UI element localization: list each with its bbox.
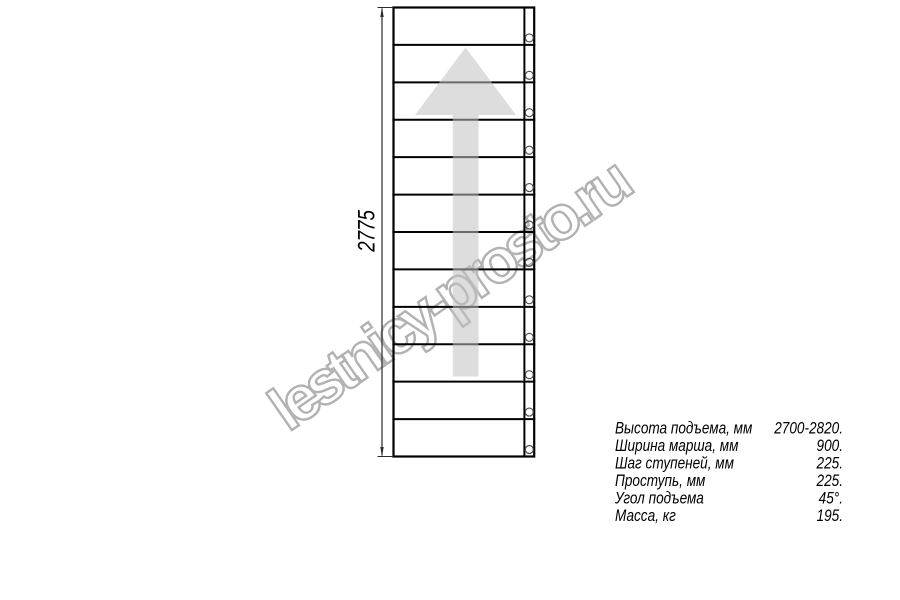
svg-text:45°.: 45°.: [819, 489, 843, 508]
svg-text:Шаг ступеней, мм: Шаг ступеней, мм: [615, 454, 734, 473]
svg-text:Ширина марша, мм: Ширина марша, мм: [615, 437, 739, 456]
svg-text:2700-2820.: 2700-2820.: [773, 419, 843, 438]
svg-text:Высота подъема, мм: Высота подъема, мм: [615, 419, 753, 438]
svg-text:2775: 2775: [353, 209, 380, 252]
svg-text:Угол подъема: Угол подъема: [614, 489, 704, 508]
svg-text:900.: 900.: [817, 437, 843, 456]
svg-text:225.: 225.: [816, 472, 843, 491]
svg-text:225.: 225.: [816, 454, 843, 473]
svg-text:195.: 195.: [817, 507, 843, 526]
svg-text:Масса, кг: Масса, кг: [615, 507, 676, 526]
svg-text:Проступь, мм: Проступь, мм: [615, 472, 706, 491]
svg-text:lestnicy-prosto.ru: lestnicy-prosto.ru: [257, 147, 642, 444]
